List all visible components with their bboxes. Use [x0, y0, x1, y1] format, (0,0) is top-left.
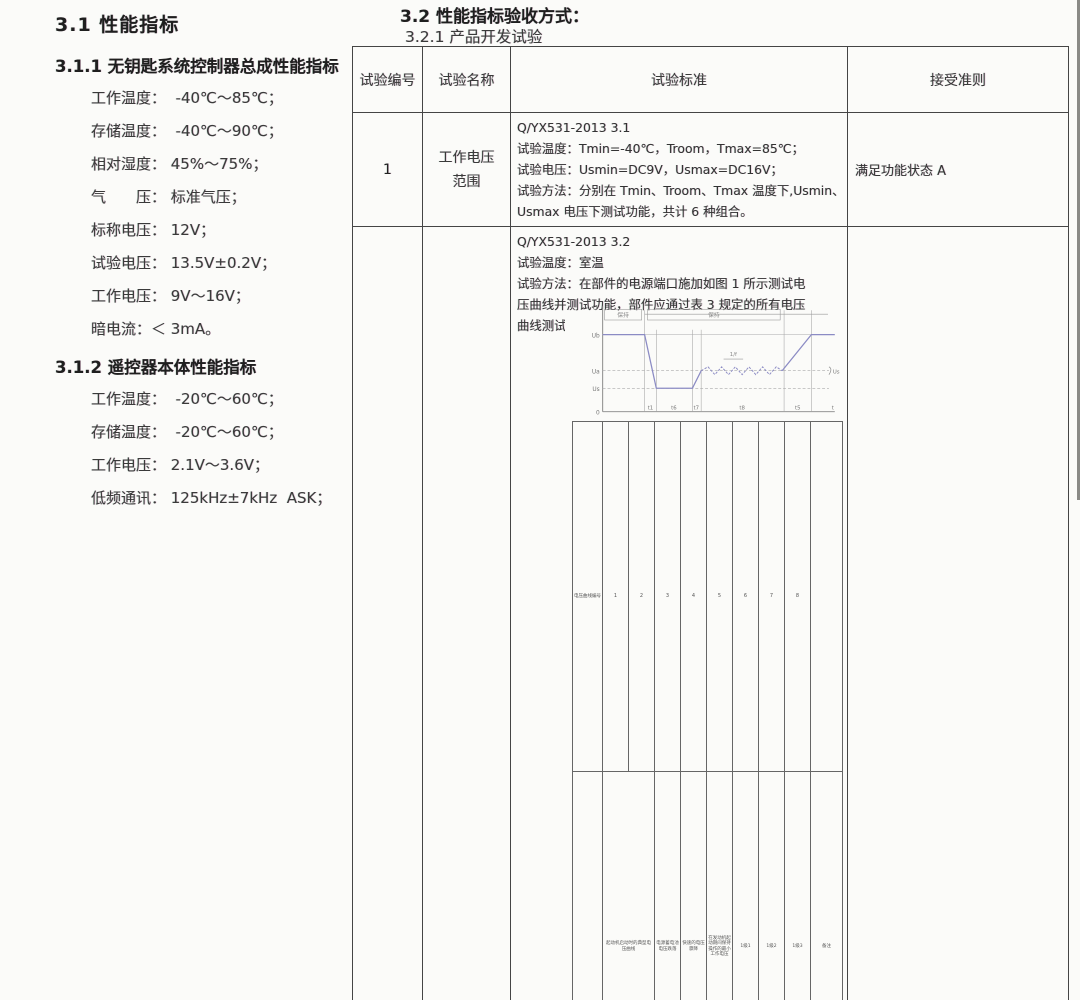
voltage-curve-table: 电压曲线编号 1 2 3 4 5 6 7 8 起动机启动时的典型电压曲线 [572, 421, 843, 1000]
standard-line: Usmax 电压下测试功能，共计 6 种组合。 [517, 201, 841, 222]
spec-line: 标称电压： 12V； [91, 219, 355, 241]
x-tick-label: t8 [740, 406, 746, 412]
standard-line: 曲线测试 [517, 315, 565, 336]
mini-col-number: 2 [629, 422, 655, 772]
test-acceptance-table: 试验编号 试验名称 试验标准 接受准则 1 工作电压范围 Q/YX531-201… [352, 46, 1069, 1000]
bracket-label: Us [833, 370, 840, 376]
mini-description-row: 起动机启动时的典型电压曲线 电源蓄电池电压跌落 快速的电压骤降 在发动机起动期间… [573, 772, 843, 1000]
standard-line: 试验温度：Tmin=-40℃，Troom，Tmax=85℃； [517, 138, 841, 159]
table-row: 1 工作电压范围 Q/YX531-2013 3.1 试验温度：Tmin=-40℃… [353, 113, 1069, 227]
test-name-cell: 工作电压范围 [423, 113, 511, 227]
test-name-cell: 工作电压快速下降 [423, 227, 511, 1000]
spec-line: 暗电流：＜ 3mA。 [91, 318, 355, 340]
heading-3-1: 3.1 性能指标 [55, 10, 355, 37]
x-end-label: t [832, 406, 834, 412]
heading-3-1-2: 3.1.2 遥控器本体性能指标 [55, 354, 355, 378]
mini-desc-cell: 1级1 [733, 772, 759, 1000]
col-header-test-standard: 试验标准 [511, 47, 848, 113]
acceptance-cell: 满足功能状态 A [848, 113, 1069, 227]
mini-col-number: 8 [785, 422, 811, 772]
x-tick-label: t1 [648, 406, 654, 412]
spec-list-3-1-1: 工作温度： -40℃～85℃； 存储温度： -40℃～90℃； 相对湿度： 45… [91, 87, 355, 340]
test-standard-cell: Q/YX531-2013 3.1 试验温度：Tmin=-40℃，Troom，Tm… [511, 113, 848, 227]
origin-label: 0 [596, 411, 600, 417]
y-axis-label: U [593, 304, 598, 312]
col-header-acceptance: 接受准则 [848, 47, 1069, 113]
mini-col-number: 6 [733, 422, 759, 772]
standard-line: 试验方法：分别在 Tmin、Troom、Tmax 温度下,Usmin、 [517, 180, 841, 201]
test-number-cell: 1 [353, 113, 423, 227]
mini-col-number: 3 [655, 422, 681, 772]
mini-col-number: 4 [681, 422, 707, 772]
ripple-frequency-label: 1/f [730, 352, 737, 358]
spec-line: 相对湿度： 45%～75%； [91, 153, 355, 175]
standard-line: Q/YX531-2013 3.1 [517, 117, 841, 138]
spec-line: 存储温度： -40℃～90℃； [91, 120, 355, 142]
mini-desc-cell: 1级2 [759, 772, 785, 1000]
mini-desc-cell: 备注 [811, 772, 843, 1000]
col-header-test-number: 试验编号 [353, 47, 423, 113]
heading-3-2: 3.2 性能指标验收方式： [400, 2, 589, 27]
x-tick-label: t7 [694, 406, 700, 412]
mini-desc-blank [573, 772, 603, 1000]
spec-line: 工作温度： -20℃～60℃； [91, 388, 355, 410]
acceptance-cell: 满足功能状态 C [848, 227, 1069, 1000]
mini-header-row: 电压曲线编号 1 2 3 4 5 6 7 8 [573, 422, 843, 772]
mini-desc-cell: 1级3 [785, 772, 811, 1000]
mini-col-number: 1 [603, 422, 629, 772]
mini-desc-cell: 快速的电压骤降 [681, 772, 707, 1000]
mini-col-number: 5 [707, 422, 733, 772]
spec-line: 工作电压： 2.1V～3.6V； [91, 454, 355, 476]
level-label-ua: Ua [592, 370, 600, 376]
standard-line: 试验电压：Usmin=DC9V，Usmax=DC16V； [517, 159, 841, 180]
x-tick-label: t5 [795, 406, 801, 412]
test-number-cell: 2 [353, 227, 423, 1000]
standard-line: 试验方法：在部件的电源端口施加如图 1 所示测试电 [517, 273, 841, 294]
level-label-us: Us [593, 387, 600, 393]
mini-col-blank [811, 422, 843, 772]
spec-line: 试验电压： 13.5V±0.2V； [91, 252, 355, 274]
voltage-curve-figure: 保持 保持 1/f U Ub Ua Us [589, 301, 841, 419]
mini-corner-cell: 电压曲线编号 [573, 422, 603, 772]
standard-line: 试验温度：室温 [517, 252, 841, 273]
level-label-ub: Ub [592, 334, 600, 340]
table-row: 2 工作电压快速下降 Q/YX531-2013 3.2 试验温度：室温 试验方法… [353, 227, 1069, 1000]
section-3-1: 3.1 性能指标 3.1.1 无钥匙系统控制器总成性能指标 工作温度： -40℃… [55, 6, 355, 520]
heading-3-1-1: 3.1.1 无钥匙系统控制器总成性能指标 [55, 53, 355, 77]
x-tick-label: t6 [671, 406, 677, 412]
spec-line: 气 压： 标准气压； [91, 186, 355, 208]
spec-line: 存储温度： -20℃～60℃； [91, 421, 355, 443]
standard-line: Q/YX531-2013 3.2 [517, 231, 841, 252]
spec-list-3-1-2: 工作温度： -20℃～60℃； 存储温度： -20℃～60℃； 工作电压： 2.… [91, 388, 355, 509]
mini-desc-cell: 起动机启动时的典型电压曲线 [603, 772, 655, 1000]
heading-3-2-1: 3.2.1 产品开发试验 [405, 25, 542, 47]
figure-phase-label: 保持 [618, 311, 630, 319]
mini-col-number: 7 [759, 422, 785, 772]
spec-line: 工作电压： 9V～16V； [91, 285, 355, 307]
scanned-document-page: 3.1 性能指标 3.1.1 无钥匙系统控制器总成性能指标 工作温度： -40℃… [0, 0, 1080, 500]
mini-desc-cell: 电源蓄电池电压跌落 [655, 772, 681, 1000]
test-standard-cell: Q/YX531-2013 3.2 试验温度：室温 试验方法：在部件的电源端口施加… [511, 227, 848, 1000]
col-header-test-name: 试验名称 [423, 47, 511, 113]
table-header-row: 试验编号 试验名称 试验标准 接受准则 [353, 47, 1069, 113]
figure-phase-label: 保持 [708, 311, 720, 319]
spec-line: 低频通讯： 125kHz±7kHz ASK； [91, 487, 355, 509]
spec-line: 工作温度： -40℃～85℃； [91, 87, 355, 109]
mini-desc-cell: 在发动机起动期间保持操作的最小工作电压 [707, 772, 733, 1000]
